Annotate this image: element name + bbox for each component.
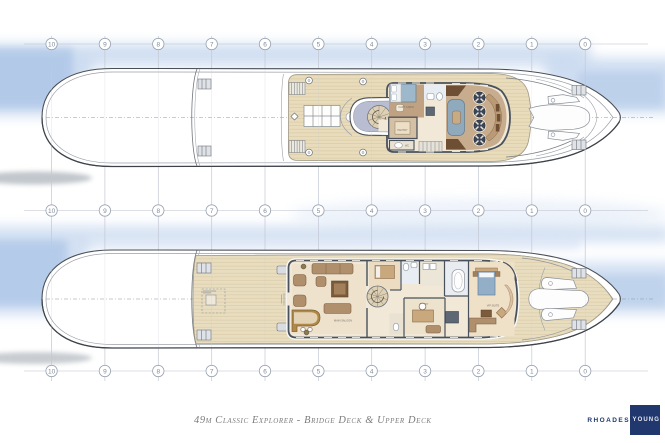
svg-text:10: 10 xyxy=(48,42,56,49)
svg-text:4: 4 xyxy=(370,42,374,49)
svg-text:1: 1 xyxy=(530,42,534,49)
svg-text:3: 3 xyxy=(423,42,427,49)
svg-text:6: 6 xyxy=(263,42,267,49)
svg-text:7: 7 xyxy=(210,42,214,49)
svg-text:9: 9 xyxy=(103,42,107,49)
svg-text:CAPT CABIN: CAPT CABIN xyxy=(398,105,414,109)
svg-text:8: 8 xyxy=(156,42,160,49)
svg-text:VIP SUITE: VIP SUITE xyxy=(487,304,500,308)
svg-text:MAIN SALOON: MAIN SALOON xyxy=(334,319,352,323)
svg-text:0: 0 xyxy=(583,42,587,49)
svg-text:2: 2 xyxy=(477,42,481,49)
svg-text:5: 5 xyxy=(317,42,321,49)
svg-text:PANTRY: PANTRY xyxy=(397,128,408,132)
svg-text:WC: WC xyxy=(405,145,409,148)
